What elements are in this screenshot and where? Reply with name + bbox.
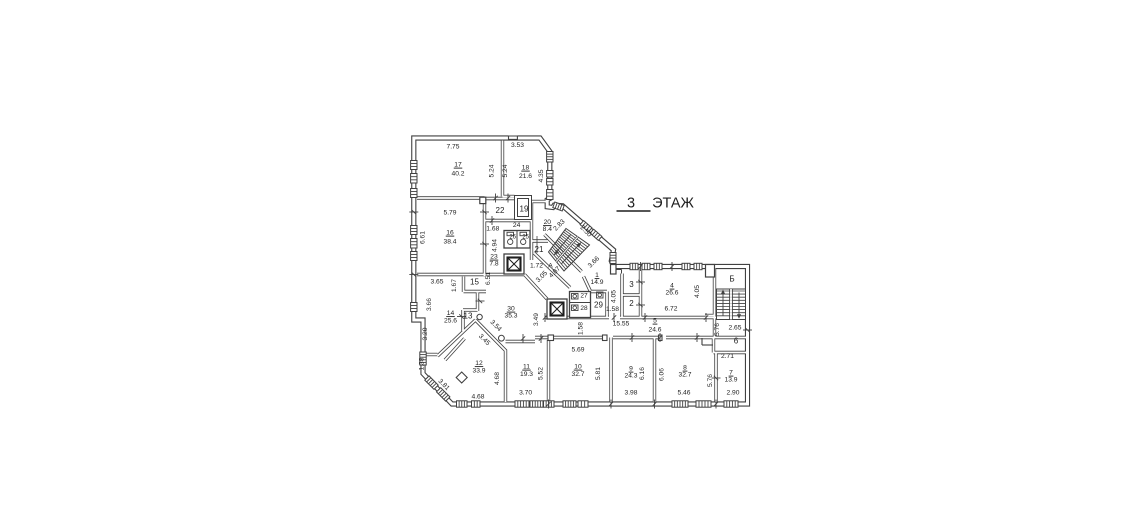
- svg-text:6.72: 6.72: [664, 306, 677, 313]
- svg-text:4.35: 4.35: [538, 169, 545, 182]
- svg-text:5.69: 5.69: [571, 347, 584, 354]
- svg-text:38.4: 38.4: [443, 239, 456, 246]
- svg-text:6: 6: [734, 337, 739, 346]
- svg-text:18: 18: [522, 165, 530, 172]
- svg-text:8: 8: [683, 365, 687, 372]
- svg-text:1.67: 1.67: [451, 279, 458, 292]
- svg-text:16: 16: [446, 230, 454, 237]
- svg-text:3.66: 3.66: [426, 298, 433, 311]
- svg-text:А: А: [548, 263, 553, 270]
- svg-text:17: 17: [454, 162, 462, 169]
- svg-text:6.61: 6.61: [420, 231, 427, 244]
- svg-text:20: 20: [544, 219, 552, 226]
- svg-text:4.68: 4.68: [471, 394, 484, 401]
- svg-text:3.98: 3.98: [624, 390, 637, 397]
- svg-text:8.4: 8.4: [543, 226, 553, 233]
- svg-text:4.94: 4.94: [492, 239, 499, 252]
- svg-text:3.20: 3.20: [422, 327, 429, 340]
- svg-text:25.6: 25.6: [444, 318, 457, 325]
- svg-text:27: 27: [580, 293, 588, 300]
- svg-text:4: 4: [670, 283, 674, 290]
- svg-text:2.65: 2.65: [728, 325, 741, 332]
- svg-text:1.38: 1.38: [419, 357, 426, 370]
- svg-text:24.3: 24.3: [624, 373, 637, 380]
- svg-text:5.46: 5.46: [677, 390, 690, 397]
- svg-text:5.79: 5.79: [443, 210, 456, 217]
- svg-text:7.8: 7.8: [489, 261, 499, 268]
- svg-text:12: 12: [475, 360, 483, 367]
- svg-text:13.9: 13.9: [724, 377, 737, 384]
- svg-text:1: 1: [595, 272, 599, 279]
- svg-text:28: 28: [580, 305, 588, 312]
- svg-text:5.24: 5.24: [489, 164, 496, 177]
- svg-text:22: 22: [496, 206, 505, 215]
- svg-text:19: 19: [520, 205, 529, 214]
- svg-text:5.24: 5.24: [502, 164, 509, 177]
- svg-text:19.3: 19.3: [520, 371, 533, 378]
- svg-text:5: 5: [653, 318, 657, 325]
- svg-text:40.2: 40.2: [451, 171, 464, 178]
- svg-text:9: 9: [629, 366, 633, 373]
- svg-text:24: 24: [513, 222, 521, 229]
- svg-text:Б: Б: [729, 275, 734, 284]
- svg-text:21.6: 21.6: [519, 173, 532, 180]
- svg-text:3: 3: [629, 280, 634, 289]
- svg-text:3.53: 3.53: [511, 142, 524, 149]
- svg-text:5.76: 5.76: [714, 323, 721, 336]
- svg-text:13: 13: [464, 312, 473, 321]
- svg-text:15: 15: [470, 278, 479, 287]
- svg-text:21: 21: [535, 245, 544, 254]
- svg-text:15.55: 15.55: [613, 321, 630, 328]
- svg-text:6.51: 6.51: [485, 272, 492, 285]
- svg-text:5.81: 5.81: [595, 367, 602, 380]
- svg-text:4.05: 4.05: [611, 290, 618, 303]
- svg-text:26.6: 26.6: [665, 290, 678, 297]
- svg-text:23: 23: [490, 254, 498, 261]
- svg-text:24.6: 24.6: [648, 327, 661, 334]
- svg-text:3.65: 3.65: [430, 279, 443, 286]
- svg-text:14: 14: [447, 310, 455, 317]
- svg-text:4.68: 4.68: [494, 372, 501, 385]
- svg-text:7: 7: [729, 370, 733, 377]
- svg-text:5.52: 5.52: [538, 367, 545, 380]
- svg-text:33.9: 33.9: [472, 368, 485, 375]
- svg-text:2: 2: [629, 299, 634, 308]
- svg-text:7.75: 7.75: [446, 144, 459, 151]
- svg-text:3.49: 3.49: [533, 313, 540, 326]
- svg-text:3.70: 3.70: [519, 390, 532, 397]
- svg-text:2.90: 2.90: [726, 390, 739, 397]
- svg-text:ЭТАЖ: ЭТАЖ: [652, 196, 694, 212]
- svg-text:32.7: 32.7: [571, 371, 584, 378]
- svg-text:1.72: 1.72: [530, 263, 543, 270]
- svg-text:1.68: 1.68: [486, 226, 499, 233]
- svg-text:10: 10: [574, 364, 582, 371]
- svg-text:11: 11: [523, 364, 530, 371]
- svg-text:30: 30: [507, 306, 515, 313]
- svg-text:6.16: 6.16: [639, 367, 646, 380]
- svg-text:25: 25: [522, 235, 529, 241]
- svg-text:5.76: 5.76: [707, 374, 714, 387]
- svg-text:4.05: 4.05: [694, 285, 701, 298]
- svg-text:3: 3: [627, 196, 635, 212]
- svg-text:14.9: 14.9: [590, 279, 603, 286]
- svg-text:26: 26: [509, 235, 516, 241]
- svg-text:29: 29: [594, 301, 603, 310]
- svg-text:1.58: 1.58: [606, 306, 619, 313]
- svg-text:1.58: 1.58: [578, 322, 585, 335]
- svg-text:32.7: 32.7: [678, 372, 691, 379]
- svg-text:6.06: 6.06: [659, 368, 666, 381]
- svg-text:2.71: 2.71: [721, 353, 734, 360]
- svg-text:35.3: 35.3: [504, 313, 517, 320]
